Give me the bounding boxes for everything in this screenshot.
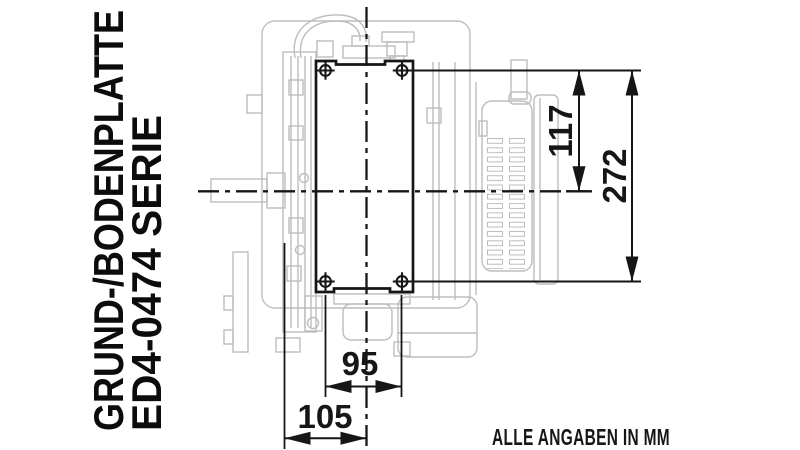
arrowhead-icon [376,380,402,393]
drawing-title-line2: ED4-0474 SERIE [123,115,170,431]
drawing-title: GRUND-/BODENPLATTE ED4-0474 SERIE [85,10,170,431]
arrowhead-icon [573,166,586,191]
arrowhead-icon [626,257,639,282]
base-plate-outline [316,61,413,292]
dimension-label-272: 272 [596,148,633,203]
arrowhead-icon [626,71,639,96]
cooling-fins [509,138,525,269]
technical-drawing-canvas: 117 272 95 105 GRUND-/BODENPLATTE ED4-04… [0,0,800,450]
dimension-label-117: 117 [542,104,579,157]
dimension-95: 95 [326,295,402,397]
dimension-label-105: 105 [297,398,352,435]
arrowhead-icon [573,71,586,96]
cooling-fins [487,138,503,269]
muffler [482,60,532,271]
units-note: ALLE ANGABEN IN MM [492,424,670,450]
dimension-label-95: 95 [342,345,379,382]
technical-drawing-page: 117 272 95 105 GRUND-/BODENPLATTE ED4-04… [0,0,800,450]
